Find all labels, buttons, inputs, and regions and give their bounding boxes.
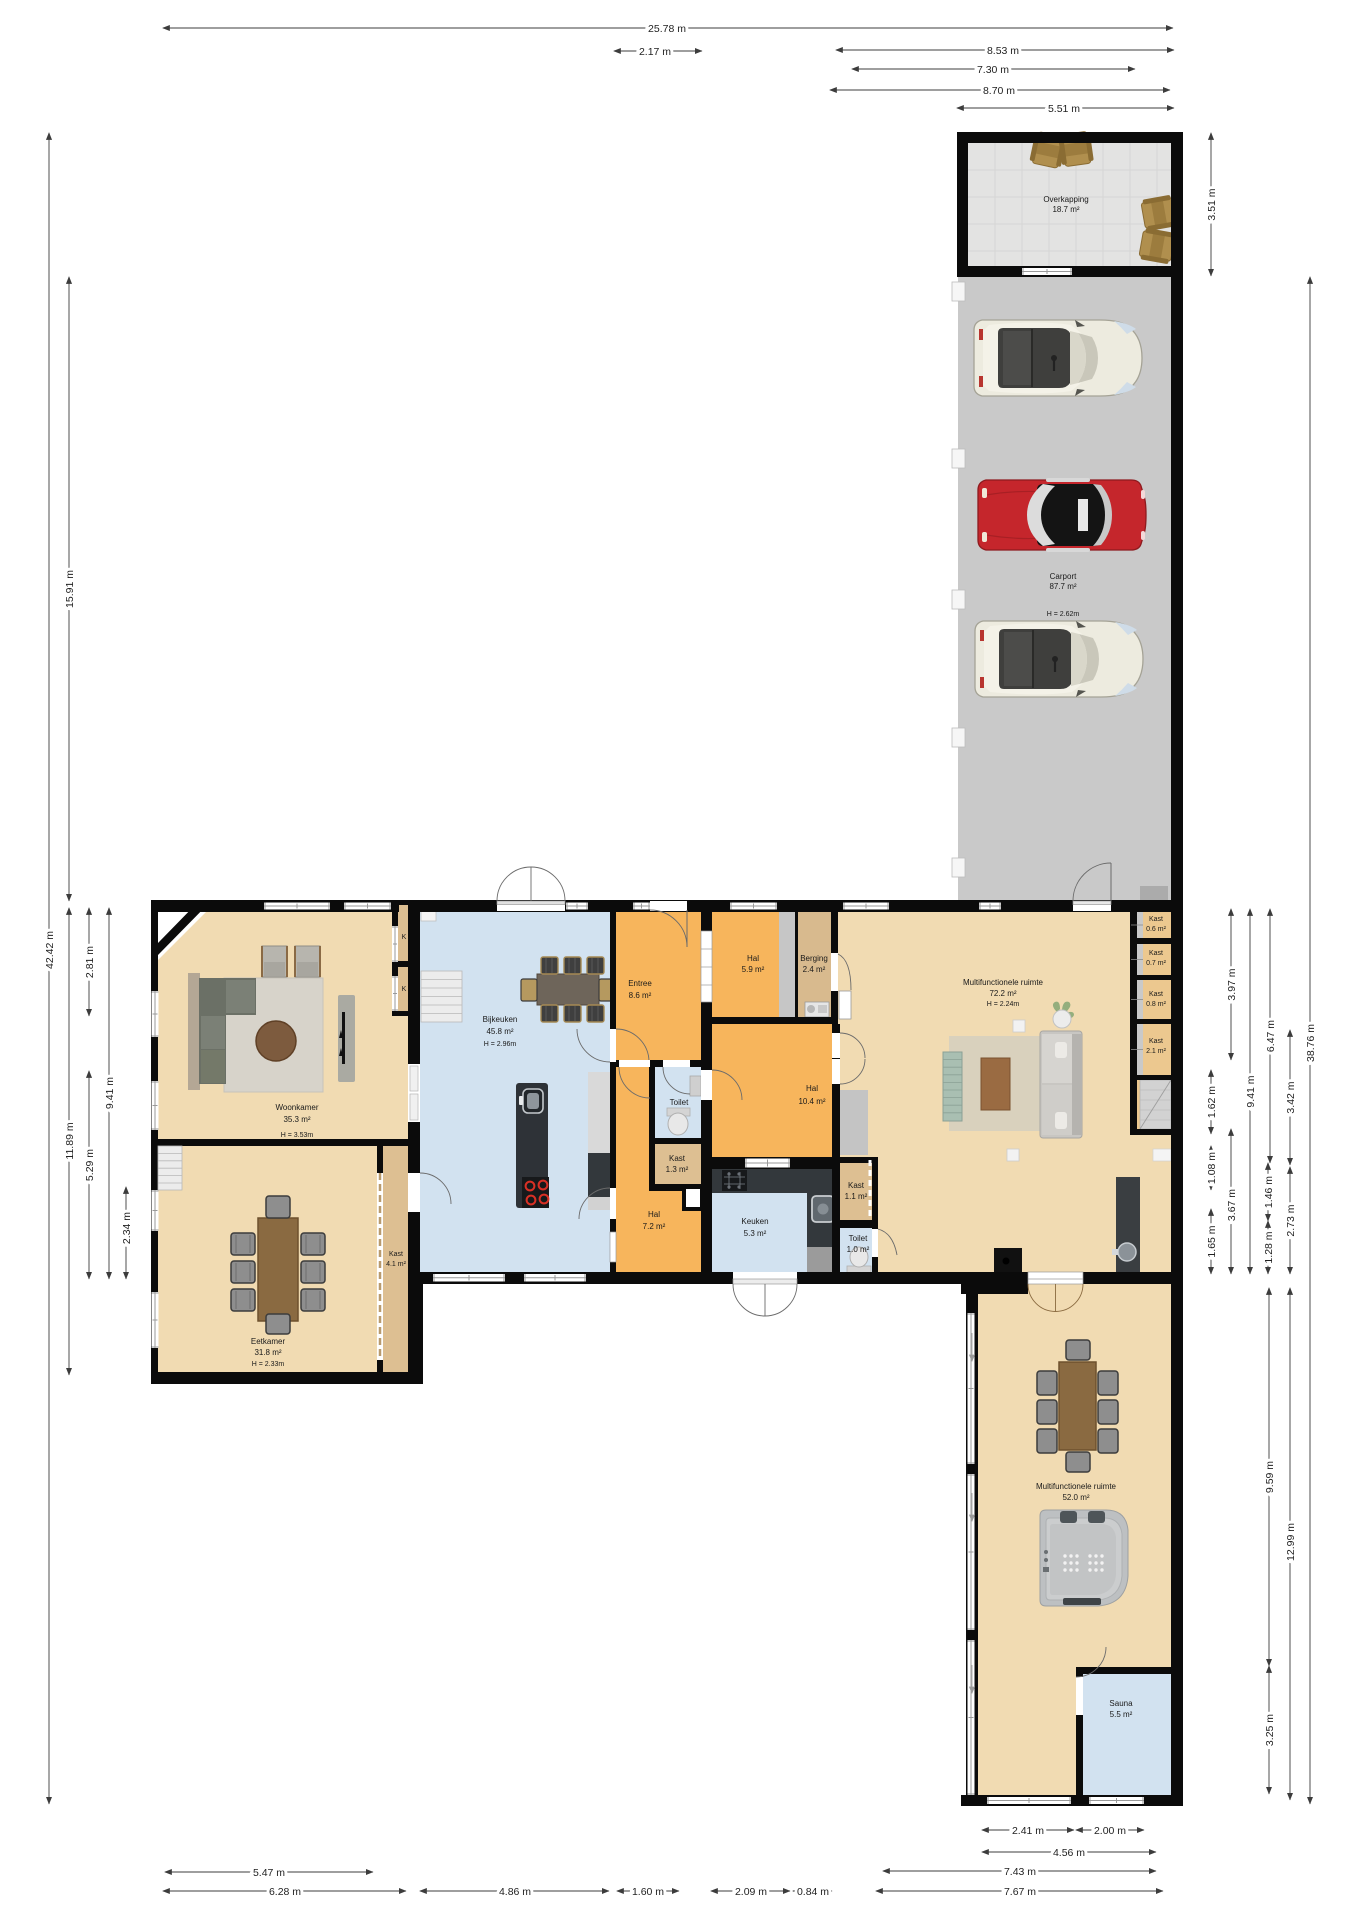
svg-text:42.42 m: 42.42 m — [44, 931, 56, 969]
svg-text:5.9 m²: 5.9 m² — [742, 965, 765, 974]
svg-text:5.5 m²: 5.5 m² — [1110, 1710, 1133, 1719]
svg-text:8.53 m: 8.53 m — [987, 45, 1019, 57]
svg-text:Kast: Kast — [1149, 950, 1163, 957]
svg-text:2.4 m²: 2.4 m² — [803, 965, 826, 974]
svg-text:7.2 m²: 7.2 m² — [643, 1222, 666, 1231]
svg-text:2.73 m: 2.73 m — [1285, 1204, 1297, 1236]
svg-text:18.7 m²: 18.7 m² — [1052, 205, 1079, 214]
svg-text:H = 2.62m: H = 2.62m — [1047, 611, 1080, 618]
svg-text:2.41 m: 2.41 m — [1012, 1825, 1044, 1837]
svg-text:9.41 m: 9.41 m — [1245, 1075, 1257, 1107]
svg-text:Kast: Kast — [1149, 991, 1163, 998]
svg-text:Bijkeuken: Bijkeuken — [483, 1015, 518, 1024]
svg-text:0.8 m²: 0.8 m² — [1146, 1001, 1167, 1008]
svg-text:2.09 m: 2.09 m — [735, 1886, 767, 1898]
svg-text:72.2 m²: 72.2 m² — [989, 989, 1016, 998]
svg-text:Berging: Berging — [800, 954, 828, 963]
svg-text:K: K — [402, 934, 407, 941]
svg-text:Entree: Entree — [628, 979, 652, 988]
svg-text:Kast: Kast — [848, 1181, 865, 1190]
svg-text:Toilet: Toilet — [670, 1098, 689, 1107]
svg-text:0.6 m²: 0.6 m² — [1146, 926, 1167, 933]
svg-text:Eetkamer: Eetkamer — [251, 1337, 286, 1346]
svg-text:Toilet: Toilet — [849, 1234, 868, 1243]
svg-text:H = 3.53m: H = 3.53m — [281, 1132, 314, 1139]
svg-text:3.67 m: 3.67 m — [1226, 1189, 1238, 1221]
svg-text:Hal: Hal — [806, 1084, 818, 1093]
svg-text:31.8 m²: 31.8 m² — [254, 1348, 281, 1357]
svg-text:5.3 m²: 5.3 m² — [744, 1229, 767, 1238]
svg-text:15.91 m: 15.91 m — [64, 570, 76, 608]
svg-text:8.70 m: 8.70 m — [983, 85, 1015, 97]
svg-text:38.76 m: 38.76 m — [1305, 1024, 1317, 1062]
svg-text:1.28 m: 1.28 m — [1263, 1231, 1275, 1263]
svg-text:Multifunctionele ruimte: Multifunctionele ruimte — [1036, 1482, 1117, 1491]
svg-text:2.1 m²: 2.1 m² — [1146, 1048, 1167, 1055]
svg-text:Kast: Kast — [389, 1251, 403, 1258]
svg-text:0.84 m: 0.84 m — [797, 1886, 829, 1898]
svg-text:H = 2.24m: H = 2.24m — [987, 1001, 1020, 1008]
svg-text:1.1 m²: 1.1 m² — [845, 1192, 868, 1201]
svg-text:3.97 m: 3.97 m — [1226, 968, 1238, 1000]
svg-text:Kast: Kast — [669, 1154, 686, 1163]
svg-text:12.99 m: 12.99 m — [1285, 1523, 1297, 1561]
svg-text:0.7 m²: 0.7 m² — [1146, 960, 1167, 967]
svg-text:87.7 m²: 87.7 m² — [1049, 582, 1076, 591]
svg-text:35.3 m²: 35.3 m² — [283, 1115, 310, 1124]
svg-text:11.89 m: 11.89 m — [64, 1122, 76, 1159]
svg-text:Multifunctionele ruimte: Multifunctionele ruimte — [963, 978, 1044, 987]
svg-text:1.46 m: 1.46 m — [1263, 1176, 1275, 1208]
svg-text:K: K — [402, 986, 407, 993]
svg-text:1.60 m: 1.60 m — [632, 1886, 664, 1898]
svg-text:2.17 m: 2.17 m — [639, 46, 671, 58]
svg-text:1.62 m: 1.62 m — [1206, 1086, 1218, 1118]
svg-text:1.0 m²: 1.0 m² — [847, 1245, 870, 1254]
svg-text:6.28 m: 6.28 m — [269, 1886, 301, 1898]
svg-text:H = 2.33m: H = 2.33m — [252, 1361, 285, 1368]
svg-text:Sauna: Sauna — [1109, 1699, 1133, 1708]
svg-text:Hal: Hal — [648, 1210, 660, 1219]
svg-text:9.59 m: 9.59 m — [1264, 1461, 1276, 1493]
svg-text:Kast: Kast — [1149, 1038, 1163, 1045]
svg-text:7.67 m: 7.67 m — [1004, 1886, 1036, 1898]
svg-text:7.30 m: 7.30 m — [977, 64, 1009, 76]
svg-text:1.65 m: 1.65 m — [1206, 1225, 1218, 1257]
svg-text:4.56 m: 4.56 m — [1053, 1847, 1085, 1859]
svg-text:4.86 m: 4.86 m — [499, 1886, 531, 1898]
svg-text:3.25 m: 3.25 m — [1264, 1714, 1276, 1746]
svg-text:Keuken: Keuken — [741, 1217, 768, 1226]
svg-text:52.0 m²: 52.0 m² — [1062, 1493, 1089, 1502]
svg-text:8.6 m²: 8.6 m² — [629, 991, 652, 1000]
svg-text:1.08 m: 1.08 m — [1206, 1152, 1218, 1184]
svg-text:Overkapping: Overkapping — [1043, 195, 1088, 204]
svg-text:5.51 m: 5.51 m — [1048, 103, 1080, 115]
svg-text:5.47 m: 5.47 m — [253, 1867, 285, 1879]
svg-text:2.00 m: 2.00 m — [1094, 1825, 1126, 1837]
svg-text:4.1 m²: 4.1 m² — [386, 1261, 407, 1268]
svg-text:Woonkamer: Woonkamer — [276, 1103, 319, 1112]
svg-text:3.42 m: 3.42 m — [1285, 1081, 1297, 1113]
svg-text:25.78 m: 25.78 m — [648, 23, 686, 35]
svg-text:1.3 m²: 1.3 m² — [666, 1165, 689, 1174]
svg-text:2.34 m: 2.34 m — [121, 1212, 133, 1244]
svg-text:H = 2.96m: H = 2.96m — [484, 1041, 517, 1048]
svg-text:45.8 m²: 45.8 m² — [486, 1027, 513, 1036]
svg-text:Hal: Hal — [747, 954, 759, 963]
svg-text:3.51 m: 3.51 m — [1206, 188, 1218, 220]
svg-text:2.81 m: 2.81 m — [84, 946, 96, 978]
svg-text:7.43 m: 7.43 m — [1004, 1866, 1036, 1878]
svg-text:6.47 m: 6.47 m — [1265, 1020, 1277, 1052]
svg-text:9.41 m: 9.41 m — [104, 1077, 116, 1109]
svg-text:Kast: Kast — [1149, 916, 1163, 923]
svg-text:5.29 m: 5.29 m — [84, 1149, 96, 1181]
svg-text:Carport: Carport — [1050, 572, 1077, 581]
svg-text:10.4 m²: 10.4 m² — [798, 1097, 825, 1106]
